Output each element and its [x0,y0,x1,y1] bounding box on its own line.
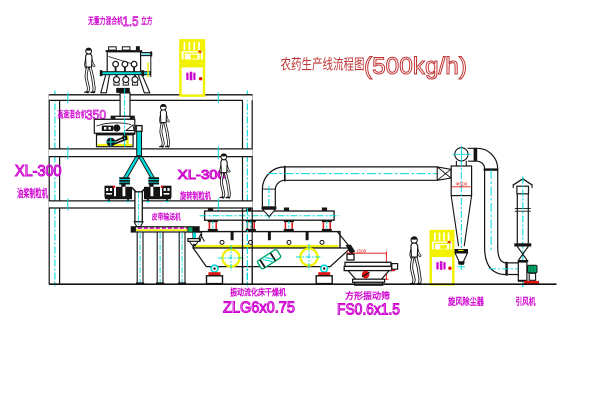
svg-text:Φ500: Φ500 [456,182,468,188]
svg-text:FS0.6x1.5: FS0.6x1.5 [337,302,400,319]
svg-text:ZLG6x0.75: ZLG6x0.75 [223,300,295,317]
svg-text:旋转制粒机: 旋转制粒机 [179,190,211,201]
svg-text:旋风除尘器: 旋风除尘器 [447,296,484,308]
svg-text:(500kg/h): (500kg/h) [364,53,467,80]
svg-text:1500: 1500 [356,248,367,253]
svg-text:振动流化床干燥机: 振动流化床干燥机 [230,287,286,298]
svg-text:无重力混合机: 无重力混合机 [87,15,123,26]
svg-text:方形振动筛: 方形振动筛 [345,290,390,301]
svg-text:高速混合机: 高速混合机 [58,109,87,120]
svg-text:XL-300: XL-300 [178,167,226,182]
svg-text:引风机: 引风机 [516,296,536,308]
svg-text:XL-300: XL-300 [15,163,62,180]
svg-text:油桨制粒机: 油桨制粒机 [17,186,48,200]
svg-text:立方: 立方 [141,15,153,26]
svg-text:农药生产线流程图: 农药生产线流程图 [281,57,365,74]
svg-text:1.5: 1.5 [123,14,139,29]
svg-text:皮带输送机: 皮带输送机 [151,211,181,221]
